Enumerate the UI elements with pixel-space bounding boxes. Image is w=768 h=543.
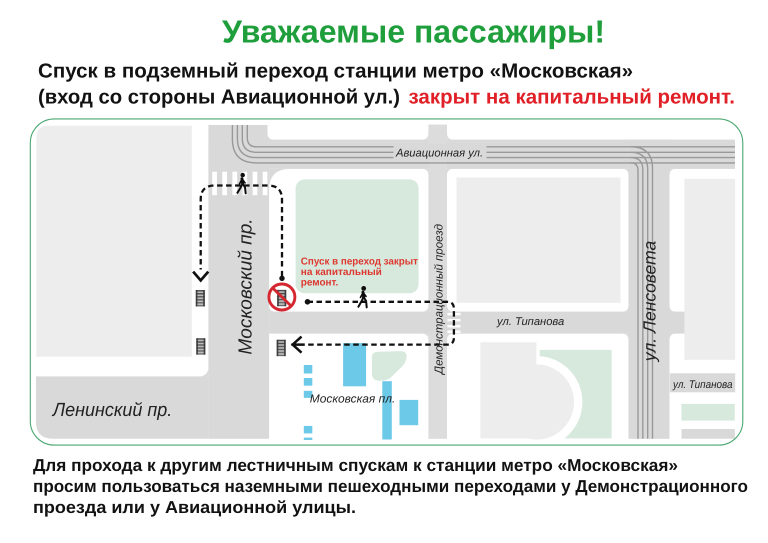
svg-text:Демонстрационный проезд: Демонстрационный проезд bbox=[434, 224, 446, 376]
svg-text:закрыт на капитальный ремонт.: закрыт на капитальный ремонт. bbox=[409, 86, 736, 108]
svg-text:(вход со стороны Авиационной у: (вход со стороны Авиационной ул.) bbox=[38, 86, 400, 108]
svg-text:Московский пр.: Московский пр. bbox=[236, 218, 257, 354]
svg-text:Уважаемые пассажиры!: Уважаемые пассажиры! bbox=[222, 13, 605, 49]
svg-text:просим пользоваться наземными: просим пользоваться наземными пешеходным… bbox=[33, 476, 748, 496]
svg-text:ул. Ленсовета: ул. Ленсовета bbox=[640, 241, 660, 363]
svg-text:Ленинский пр.: Ленинский пр. bbox=[51, 400, 172, 421]
svg-text:проезда или у Авиационной улиц: проезда или у Авиационной улицы. bbox=[33, 497, 356, 517]
svg-text:на капитальный: на капитальный bbox=[301, 267, 382, 278]
svg-text:Спуск в переход закрыт: Спуск в переход закрыт bbox=[301, 257, 418, 268]
svg-text:Авиационная ул.: Авиационная ул. bbox=[395, 147, 483, 159]
svg-text:Московская пл.: Московская пл. bbox=[310, 392, 396, 405]
svg-text:ул. Типанова: ул. Типанова bbox=[496, 316, 564, 328]
svg-text:Спуск в подземный переход стан: Спуск в подземный переход станции метро … bbox=[38, 60, 633, 82]
svg-text:ремонт.: ремонт. bbox=[301, 278, 339, 289]
svg-text:Для прохода к другим лестничны: Для прохода к другим лестничным спускам … bbox=[33, 455, 678, 475]
svg-text:ул. Типанова: ул. Типанова bbox=[672, 379, 732, 391]
